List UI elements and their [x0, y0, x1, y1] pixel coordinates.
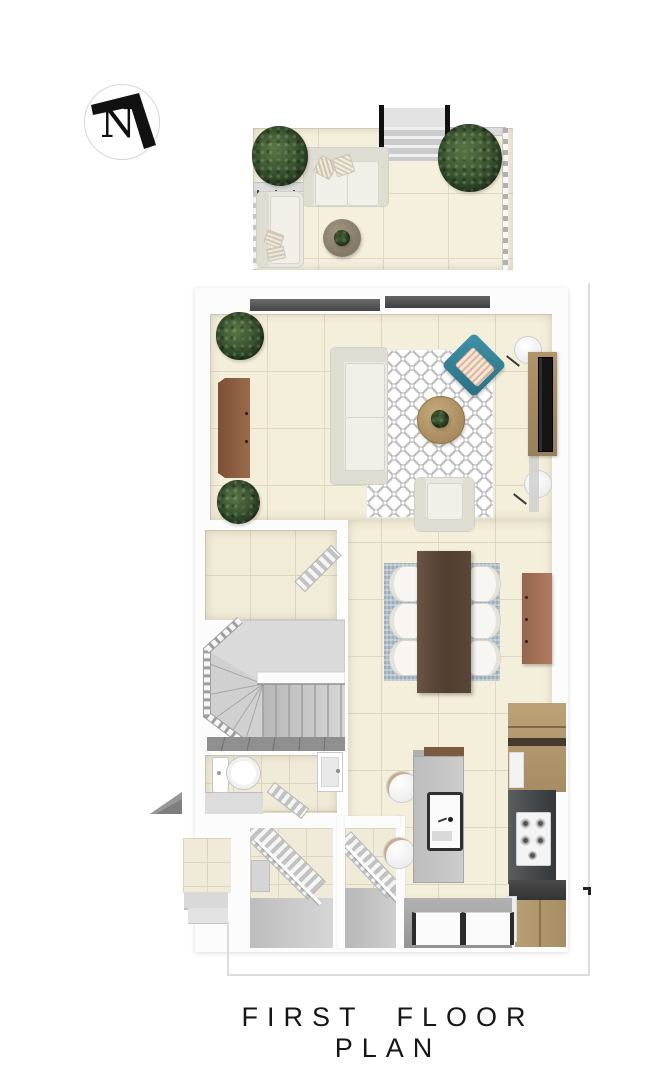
- entry-direction-arrow: [150, 790, 184, 816]
- kitchen-bar-stool: [383, 837, 415, 869]
- terrace-sofa: [303, 147, 389, 207]
- floor-plan-canvas: N: [0, 0, 647, 1080]
- living-armchair: [414, 477, 475, 532]
- bathroom-sink: [317, 752, 343, 792]
- kitchen-wall-cabinet: [508, 703, 566, 792]
- terrace-lounge-chair: [256, 191, 304, 268]
- entry-a-ledge: [251, 860, 270, 892]
- entry-a-floor: [250, 898, 333, 948]
- sink-bowl-shadow: [432, 831, 452, 841]
- boundary-line-bottom: [227, 974, 590, 976]
- kitchen-window: [412, 912, 464, 945]
- bathroom-floor-ledge: [205, 792, 263, 814]
- terrace-entry-landing: [382, 108, 448, 128]
- dining-chair: [469, 603, 501, 639]
- terrace-plant-left: [252, 126, 308, 186]
- dining-chair: [469, 566, 501, 602]
- entry-hall-a: [250, 828, 333, 948]
- island-sink-faucet: [448, 817, 453, 822]
- dining-sideboard-knob: [525, 618, 528, 621]
- dining-sideboard-knob: [525, 640, 528, 643]
- living-sofa-backrest: [331, 348, 344, 484]
- hob-burner: [535, 835, 546, 846]
- gate-mark: [588, 887, 591, 895]
- living-table-plant: [431, 410, 449, 428]
- living-sideboard-knob: [245, 440, 248, 443]
- north-arrow-icon: [84, 84, 166, 158]
- living-sofa: [330, 347, 388, 485]
- sliding-door-left: [250, 299, 380, 311]
- terrace-sofa-armrest-right: [378, 148, 388, 206]
- tv: [538, 357, 553, 452]
- boundary-line-left: [227, 922, 229, 975]
- terrace-gate-post-left: [379, 105, 384, 149]
- hob-burner: [520, 835, 531, 846]
- living-plant-bottom: [217, 480, 260, 524]
- armchair-cushion: [427, 483, 463, 520]
- plan-title: FIRST FLOOR PLAN: [188, 1002, 588, 1064]
- dining-sideboard-knob: [525, 596, 528, 599]
- gas-hob: [516, 812, 551, 866]
- cabinet-white-door: [509, 752, 524, 788]
- dining-table: [417, 551, 471, 693]
- sink-tap: [336, 769, 340, 773]
- kitchen-window: [462, 912, 514, 945]
- staircase: [195, 615, 345, 755]
- dining-chair: [469, 640, 501, 676]
- living-sideboard: [218, 378, 250, 478]
- kitchen-island-sink: [427, 792, 463, 851]
- sliding-door-right: [385, 296, 490, 308]
- kitchen-base-cabinet: [515, 900, 566, 947]
- terrace-railing-right: [502, 128, 508, 270]
- hob-burner: [535, 818, 546, 829]
- living-sofa-armrest-top: [331, 348, 387, 362]
- living-plant-top: [216, 312, 264, 360]
- cabinet-seam: [508, 726, 566, 728]
- boundary-line-right: [588, 283, 590, 975]
- hob-burner: [528, 851, 537, 860]
- toilet-flush-button: [217, 771, 221, 775]
- toilet-bowl: [226, 756, 261, 790]
- entry-wall: [345, 816, 400, 828]
- terrace-plant-right: [438, 124, 502, 192]
- stair-handrail: [257, 672, 345, 684]
- living-sofa-armrest-bottom: [331, 470, 387, 484]
- living-sofa-cushion: [345, 363, 385, 418]
- cabinet-dark-band: [508, 738, 566, 746]
- island-sink-handle: [438, 818, 447, 823]
- hob-burner: [520, 818, 531, 829]
- terrace-table-plant: [334, 230, 350, 246]
- living-sofa-cushion: [345, 417, 385, 471]
- porch-step: [188, 908, 228, 924]
- living-sideboard-knob: [245, 412, 248, 415]
- porch-tiles: [183, 838, 231, 893]
- cabinet-seam: [539, 900, 541, 947]
